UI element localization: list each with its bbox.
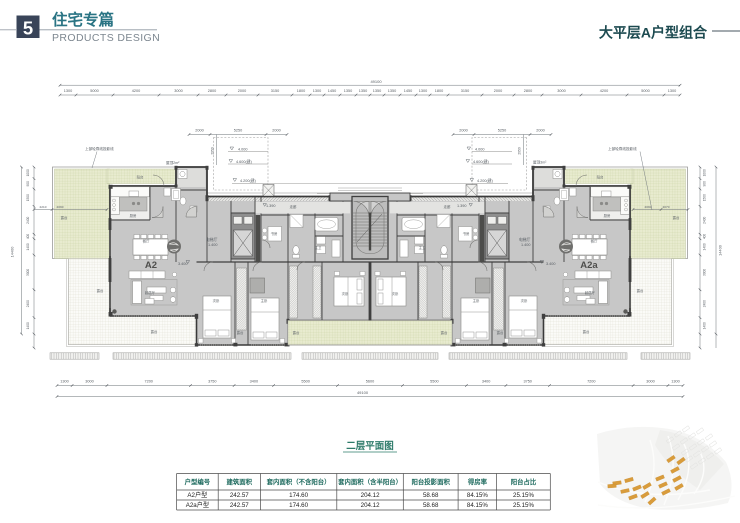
svg-text:84.15%: 84.15% <box>467 492 488 499</box>
svg-text:走廊: 走廊 <box>290 204 297 209</box>
svg-text:4.200(建): 4.200(建) <box>477 178 494 183</box>
svg-text:1800: 1800 <box>297 89 305 93</box>
svg-text:3400: 3400 <box>482 379 490 383</box>
svg-text:走廊: 走廊 <box>444 204 451 209</box>
svg-text:露台: 露台 <box>97 288 104 293</box>
svg-text:204.12: 204.12 <box>361 492 380 499</box>
svg-text:上部轮廓线投影线: 上部轮廓线投影线 <box>85 146 114 151</box>
svg-text:5500: 5500 <box>301 379 309 383</box>
svg-text:1400: 1400 <box>703 243 707 250</box>
svg-text:3000: 3000 <box>703 269 707 276</box>
svg-text:套内面积（含半阳台）: 套内面积（含半阳台） <box>338 477 402 486</box>
svg-text:242.57: 242.57 <box>230 502 249 509</box>
svg-text:1300: 1300 <box>668 89 676 93</box>
svg-text:起居厅: 起居厅 <box>145 290 156 295</box>
svg-text:1000: 1000 <box>26 169 30 176</box>
svg-text:2090: 2090 <box>645 205 652 209</box>
svg-text:住宅专篇: 住宅专篇 <box>52 10 114 29</box>
svg-text:5600: 5600 <box>366 379 374 383</box>
svg-text:书房: 书房 <box>271 231 278 236</box>
svg-text:400: 400 <box>703 234 707 240</box>
svg-text:2000: 2000 <box>536 129 544 133</box>
svg-text:2400: 2400 <box>26 217 30 224</box>
svg-text:58.68: 58.68 <box>423 492 439 499</box>
svg-text:露台: 露台 <box>237 330 244 335</box>
svg-text:5250: 5250 <box>498 129 506 133</box>
svg-text:2400: 2400 <box>26 300 30 307</box>
svg-text:户型编号: 户型编号 <box>185 477 211 486</box>
svg-text:2000: 2000 <box>272 129 280 133</box>
svg-text:84.15%: 84.15% <box>467 502 488 509</box>
svg-text:2090: 2090 <box>57 205 64 209</box>
svg-text:3.400: 3.400 <box>546 262 556 266</box>
svg-text:3.400: 3.400 <box>178 262 188 266</box>
svg-text:3400: 3400 <box>250 379 258 383</box>
svg-text:露台: 露台 <box>151 329 158 334</box>
svg-text:4.000: 4.000 <box>238 148 248 152</box>
svg-text:次卧: 次卧 <box>342 291 349 296</box>
svg-text:1300: 1300 <box>671 379 679 383</box>
svg-text:242.57: 242.57 <box>230 492 249 499</box>
svg-text:1300: 1300 <box>419 89 427 93</box>
svg-text:1350: 1350 <box>388 89 396 93</box>
svg-text:5500: 5500 <box>430 379 438 383</box>
svg-text:400: 400 <box>26 234 30 240</box>
svg-text:174.60: 174.60 <box>289 502 308 509</box>
svg-text:1400: 1400 <box>26 243 30 250</box>
svg-text:58.68: 58.68 <box>423 502 439 509</box>
svg-text:3000: 3000 <box>85 379 93 383</box>
svg-text:电梯厅: 电梯厅 <box>206 237 218 242</box>
svg-text:露台: 露台 <box>441 330 448 335</box>
svg-text:1350: 1350 <box>359 89 367 93</box>
svg-text:屋顶3m²: 屋顶3m² <box>533 160 547 165</box>
svg-text:174.60: 174.60 <box>289 492 308 499</box>
svg-text:2070: 2070 <box>663 205 670 209</box>
svg-text:2000: 2000 <box>195 129 203 133</box>
svg-text:1300: 1300 <box>64 89 72 93</box>
svg-text:起居厅: 起居厅 <box>585 290 596 295</box>
svg-text:1500: 1500 <box>26 194 30 201</box>
svg-text:3000: 3000 <box>174 89 182 93</box>
svg-text:2050: 2050 <box>211 147 215 155</box>
svg-text:25.15%: 25.15% <box>513 502 534 509</box>
svg-text:4.200(建): 4.200(建) <box>240 178 257 183</box>
svg-text:书房: 书房 <box>463 231 470 236</box>
svg-text:1400: 1400 <box>703 322 707 329</box>
svg-text:7200: 7200 <box>587 379 595 383</box>
svg-text:主卫: 主卫 <box>315 245 322 250</box>
svg-text:电梯厅: 电梯厅 <box>519 237 531 242</box>
svg-text:204.12: 204.12 <box>361 502 380 509</box>
svg-text:4.000: 4.000 <box>475 148 485 152</box>
svg-text:次卧: 次卧 <box>521 298 528 303</box>
svg-text:1.390: 1.390 <box>266 204 276 208</box>
svg-text:1400: 1400 <box>26 322 30 329</box>
svg-text:2800: 2800 <box>524 89 532 93</box>
svg-text:二层平面图: 二层平面图 <box>346 441 394 452</box>
svg-text:得房率: 得房率 <box>467 477 488 486</box>
svg-text:4.600(建): 4.600(建) <box>473 159 490 164</box>
svg-text:主卧: 主卧 <box>261 298 268 303</box>
svg-text:1.390: 1.390 <box>457 204 467 208</box>
svg-text:900: 900 <box>26 181 30 187</box>
svg-text:餐厅: 餐厅 <box>143 239 150 244</box>
svg-text:14400: 14400 <box>718 244 723 256</box>
svg-text:1000: 1000 <box>703 169 707 176</box>
svg-text:4200: 4200 <box>132 89 140 93</box>
svg-text:4200: 4200 <box>600 89 608 93</box>
svg-text:1300: 1300 <box>313 89 321 93</box>
svg-text:1.400: 1.400 <box>208 243 218 247</box>
svg-text:A2: A2 <box>145 260 157 271</box>
svg-text:5: 5 <box>23 17 33 38</box>
svg-text:阳台占比: 阳台占比 <box>511 477 537 486</box>
svg-text:3000: 3000 <box>557 89 565 93</box>
svg-text:阳台: 阳台 <box>597 175 604 180</box>
svg-text:1350: 1350 <box>373 89 381 93</box>
svg-text:7200: 7200 <box>144 379 152 383</box>
svg-text:建筑面积: 建筑面积 <box>226 477 253 486</box>
svg-text:大平层A户型组合: 大平层A户型组合 <box>599 25 708 41</box>
svg-text:厨房: 厨房 <box>604 213 611 218</box>
svg-text:餐厅: 餐厅 <box>591 239 598 244</box>
svg-text:2400: 2400 <box>703 217 707 224</box>
svg-text:2800: 2800 <box>208 89 216 93</box>
svg-text:PRODUCTS DESIGN: PRODUCTS DESIGN <box>52 32 160 44</box>
svg-text:A2a户型: A2a户型 <box>186 501 209 509</box>
svg-text:3000: 3000 <box>26 269 30 276</box>
svg-text:2000: 2000 <box>238 89 246 93</box>
svg-text:露台: 露台 <box>497 330 504 335</box>
svg-text:900: 900 <box>703 181 707 187</box>
svg-text:1.400: 1.400 <box>521 243 531 247</box>
svg-text:套内面积（不含阳台）: 套内面积（不含阳台） <box>267 477 331 486</box>
svg-text:49100: 49100 <box>357 390 369 395</box>
svg-text:A2a: A2a <box>580 260 598 271</box>
svg-text:3150: 3150 <box>461 89 469 93</box>
svg-text:次卧: 次卧 <box>213 298 220 303</box>
svg-text:2000: 2000 <box>494 89 502 93</box>
svg-text:2000: 2000 <box>459 129 467 133</box>
svg-text:3000: 3000 <box>646 379 654 383</box>
svg-text:49100: 49100 <box>370 79 382 84</box>
svg-text:2210: 2210 <box>40 205 47 209</box>
svg-text:3150: 3150 <box>271 89 279 93</box>
svg-text:25.15%: 25.15% <box>513 492 534 499</box>
svg-text:露台: 露台 <box>583 329 590 334</box>
svg-text:露台: 露台 <box>61 215 68 220</box>
svg-text:1450: 1450 <box>404 89 412 93</box>
svg-text:主卧: 主卧 <box>473 298 480 303</box>
svg-text:5000: 5000 <box>641 89 649 93</box>
svg-text:1450: 1450 <box>328 89 336 93</box>
svg-text:上部轮廓线投影线: 上部轮廓线投影线 <box>608 146 637 151</box>
svg-text:5000: 5000 <box>90 89 98 93</box>
svg-text:屋顶2m²: 屋顶2m² <box>166 160 180 165</box>
svg-text:露台: 露台 <box>637 288 644 293</box>
svg-text:阳台投影面积: 阳台投影面积 <box>412 477 451 486</box>
svg-text:阳台: 阳台 <box>137 175 144 180</box>
svg-text:2050: 2050 <box>518 147 522 155</box>
svg-text:1300: 1300 <box>60 379 68 383</box>
svg-text:4.600(建): 4.600(建) <box>236 159 253 164</box>
svg-text:5250: 5250 <box>234 129 242 133</box>
svg-text:厨房: 厨房 <box>130 213 137 218</box>
svg-text:3750: 3750 <box>208 379 216 383</box>
svg-text:1800: 1800 <box>435 89 443 93</box>
svg-text:2400: 2400 <box>703 300 707 307</box>
svg-text:A2户型: A2户型 <box>187 491 207 499</box>
svg-text:14400: 14400 <box>10 246 15 258</box>
svg-text:1350: 1350 <box>344 89 352 93</box>
svg-text:露台: 露台 <box>673 215 680 220</box>
svg-text:主卫: 主卫 <box>419 245 426 250</box>
svg-text:露台: 露台 <box>293 330 300 335</box>
svg-text:3750: 3750 <box>523 379 531 383</box>
svg-text:1500: 1500 <box>703 194 707 201</box>
svg-text:次卧: 次卧 <box>392 291 399 296</box>
